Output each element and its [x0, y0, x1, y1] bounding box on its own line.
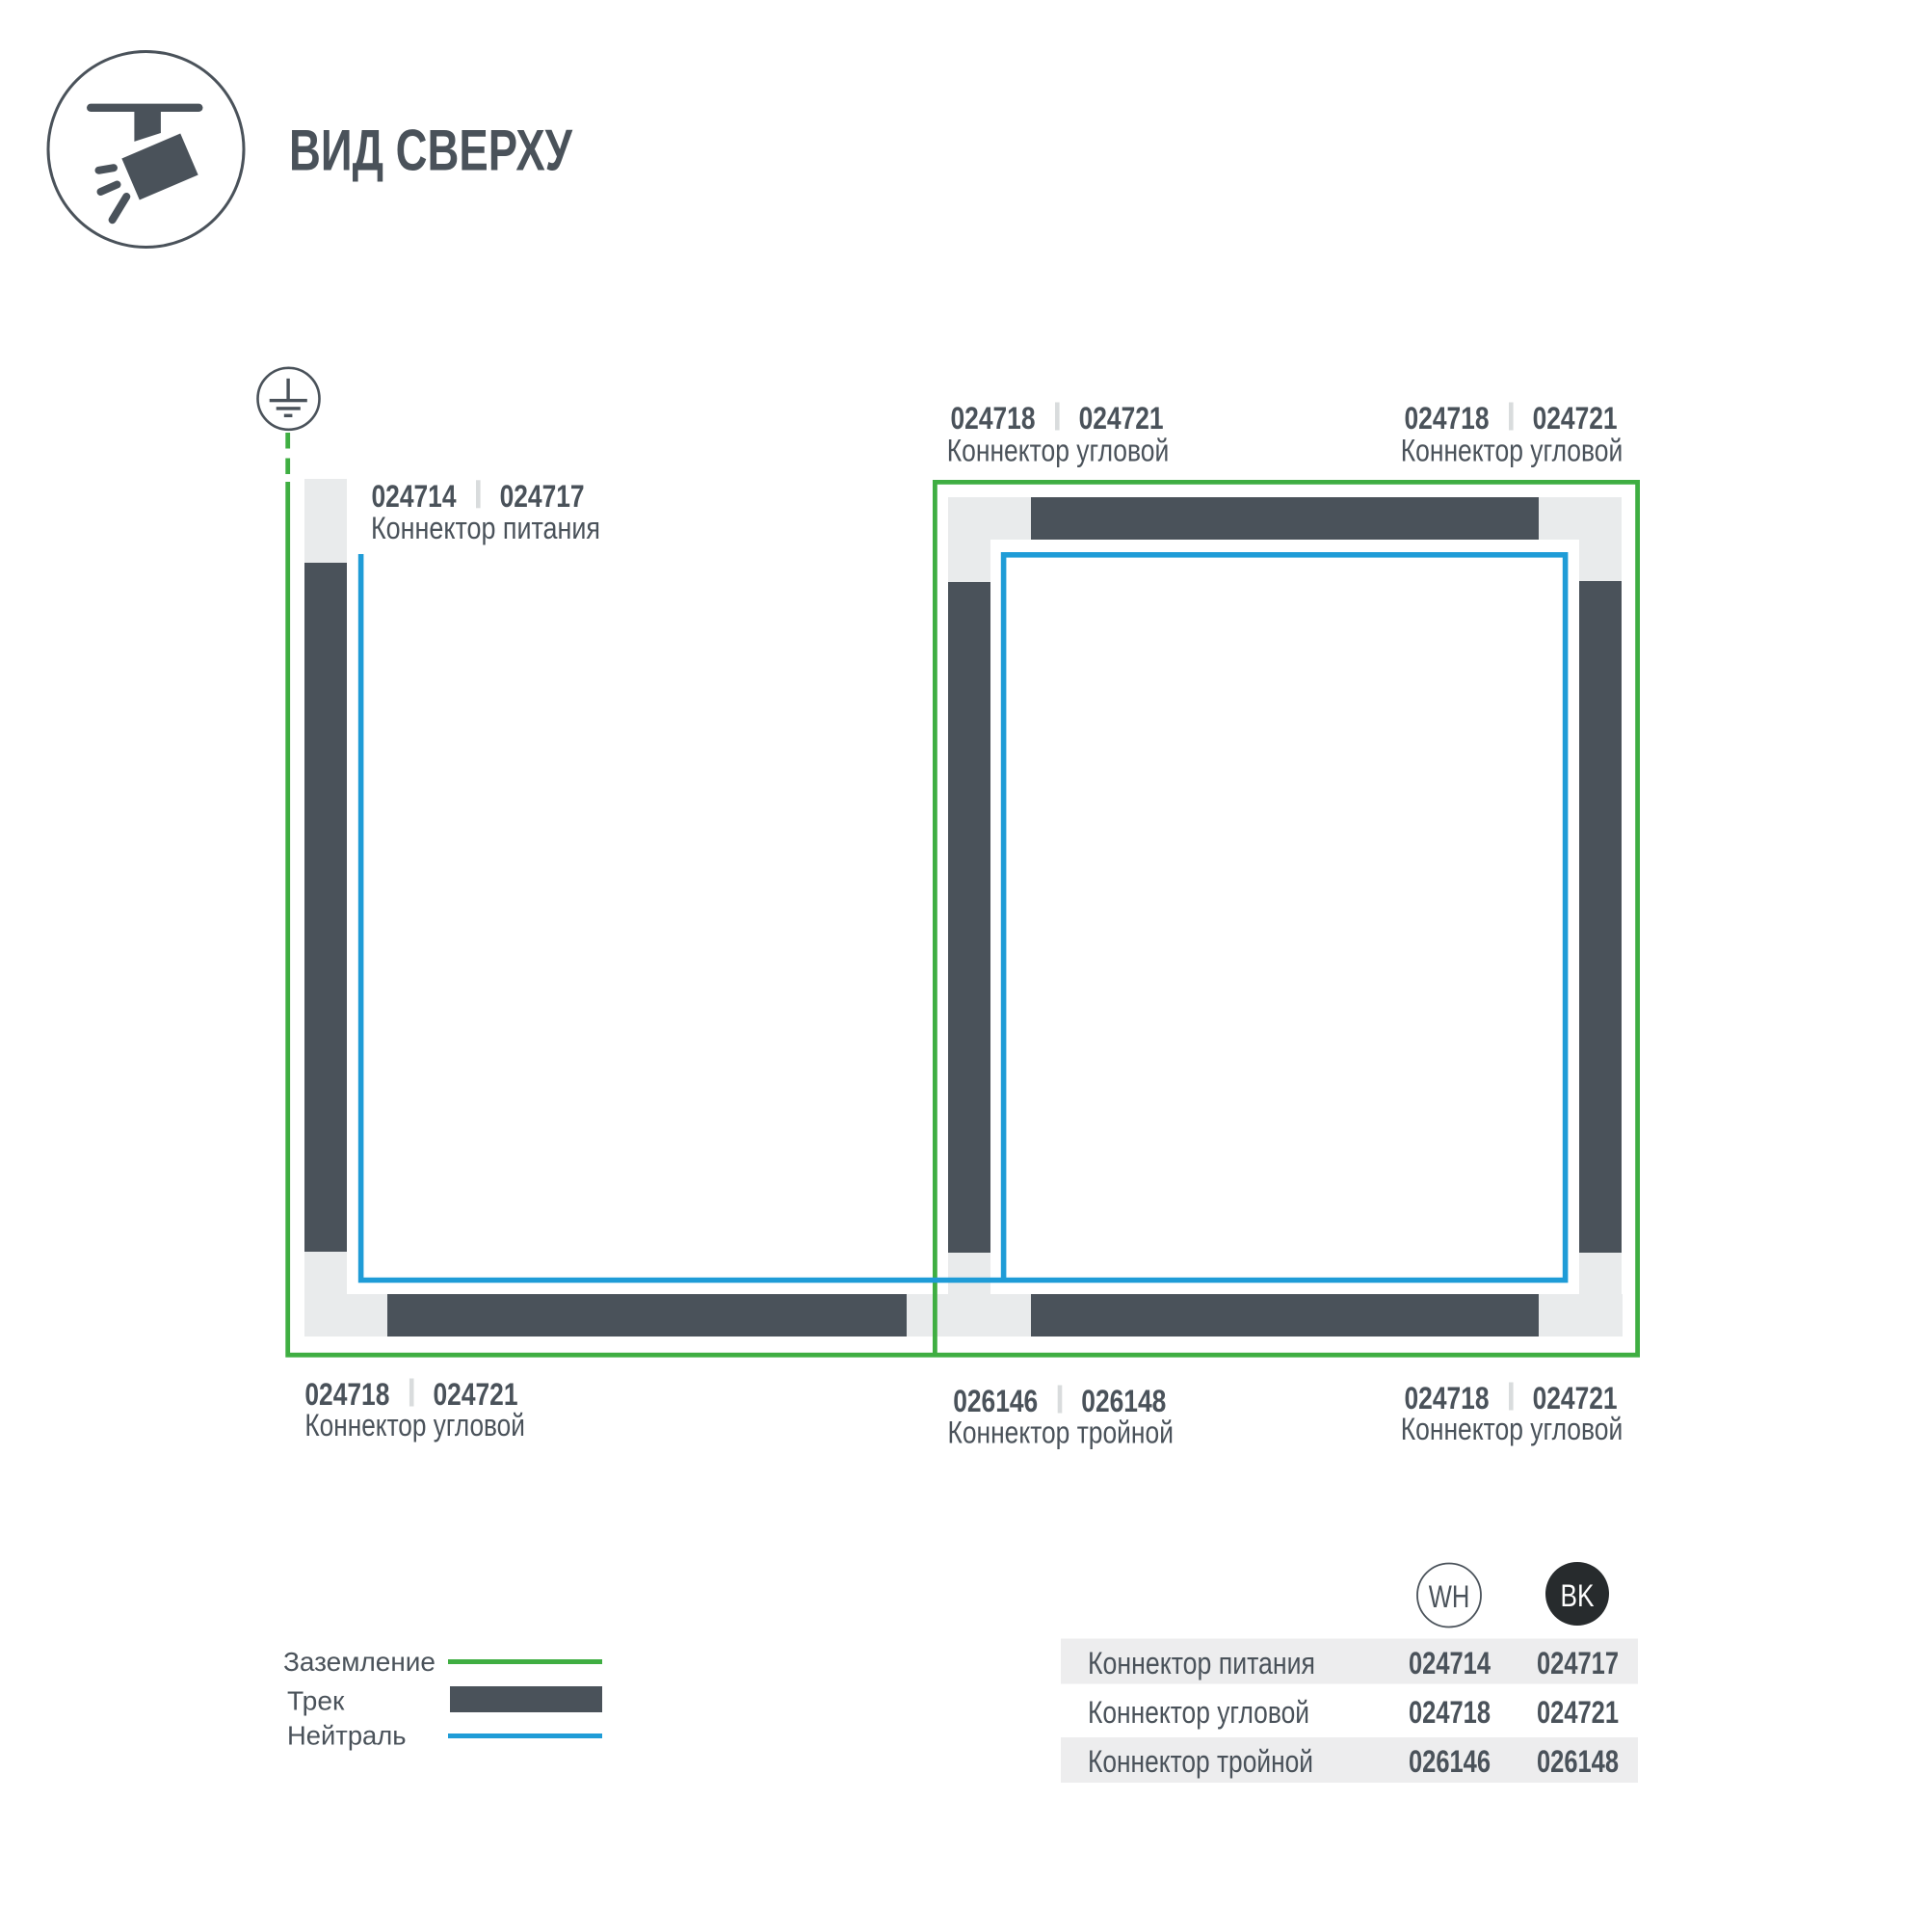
svg-text:024721: 024721: [1533, 1381, 1618, 1416]
svg-text:Коннектор угловой: Коннектор угловой: [947, 434, 1170, 468]
svg-text:024721: 024721: [1079, 401, 1164, 436]
svg-text:ВИД СВЕРХУ: ВИД СВЕРХУ: [289, 119, 573, 183]
svg-text:Коннектор угловой: Коннектор угловой: [304, 1408, 525, 1442]
svg-text:024718: 024718: [304, 1377, 389, 1412]
svg-text:026146: 026146: [1409, 1744, 1491, 1779]
svg-text:024714: 024714: [1409, 1646, 1491, 1681]
svg-text:Нейтраль: Нейтраль: [287, 1721, 407, 1751]
svg-text:026148: 026148: [1537, 1744, 1619, 1779]
svg-text:024718: 024718: [1405, 1381, 1490, 1416]
svg-text:024721: 024721: [434, 1377, 518, 1412]
svg-text:024717: 024717: [1537, 1646, 1619, 1681]
svg-text:Коннектор угловой: Коннектор угловой: [1088, 1695, 1309, 1730]
svg-text:024718: 024718: [951, 401, 1036, 436]
svg-text:024718: 024718: [1405, 401, 1490, 436]
svg-text:024714: 024714: [372, 479, 457, 514]
svg-text:Коннектор тройной: Коннектор тройной: [947, 1416, 1174, 1450]
svg-text:024717: 024717: [500, 479, 585, 514]
svg-text:Заземление: Заземление: [283, 1647, 436, 1677]
svg-text:024718: 024718: [1409, 1695, 1491, 1730]
svg-text:Трек: Трек: [287, 1686, 345, 1716]
svg-text:WH: WH: [1429, 1579, 1470, 1614]
svg-text:Коннектор тройной: Коннектор тройной: [1088, 1744, 1313, 1779]
svg-text:024721: 024721: [1533, 401, 1618, 436]
svg-text:Коннектор питания: Коннектор питания: [1088, 1646, 1315, 1681]
svg-text:BK: BK: [1561, 1578, 1595, 1613]
svg-text:026148: 026148: [1081, 1384, 1166, 1418]
svg-text:026146: 026146: [953, 1384, 1038, 1418]
svg-text:Коннектор угловой: Коннектор угловой: [1401, 434, 1623, 468]
svg-text:Коннектор питания: Коннектор питания: [371, 511, 600, 545]
svg-text:Коннектор угловой: Коннектор угловой: [1401, 1412, 1623, 1446]
svg-text:024721: 024721: [1537, 1695, 1619, 1730]
